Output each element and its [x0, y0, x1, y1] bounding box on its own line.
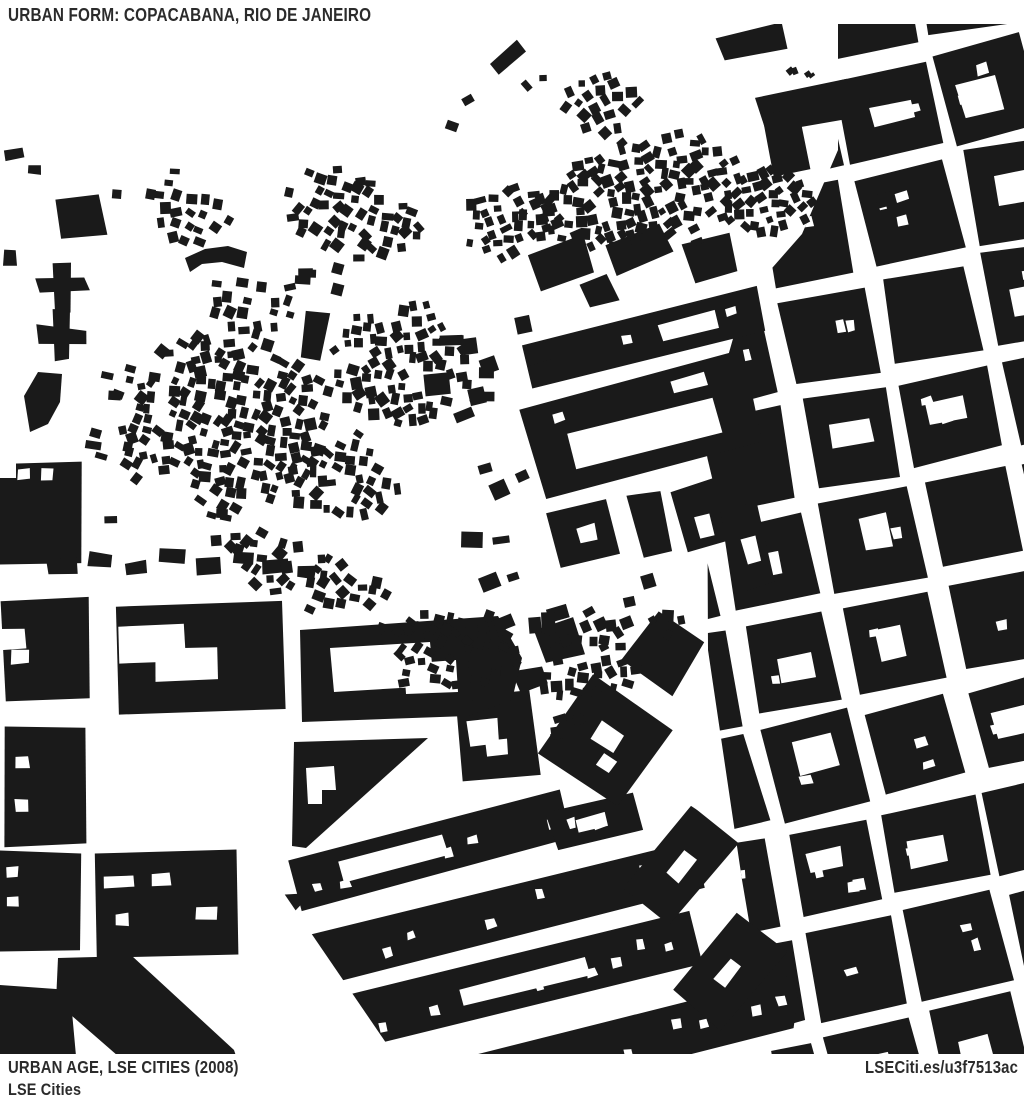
credit-source: URBAN AGE, LSE CITIES (2008): [8, 1057, 239, 1078]
map-root: [0, 0, 1024, 1110]
short-link: LSECiti.es/u3f7513ac: [865, 1057, 1018, 1078]
diagonal-slab-blocks-layer: [258, 738, 805, 1110]
credit-org: LSE Cities: [8, 1080, 81, 1100]
urban-form-poster: URBAN FORM: COPACABANA, RIO DE JANEIRO U…: [0, 0, 1024, 1110]
figure-ground-map: [0, 0, 1024, 1110]
page-title: URBAN FORM: COPACABANA, RIO DE JANEIRO: [8, 5, 371, 26]
